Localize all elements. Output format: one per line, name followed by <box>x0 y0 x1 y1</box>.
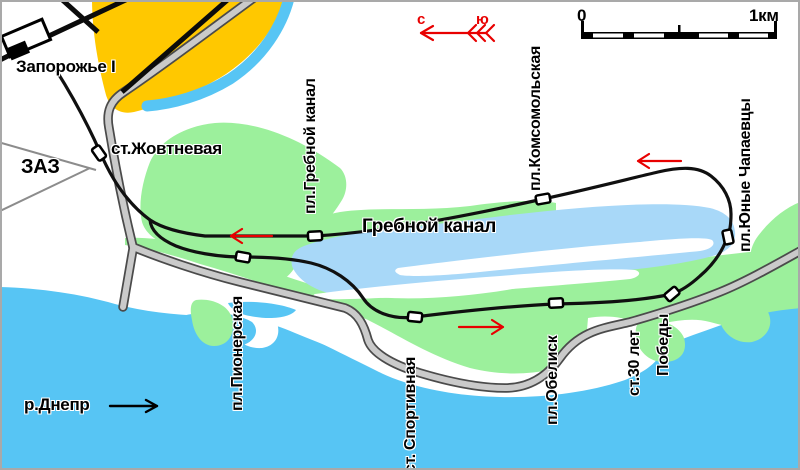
route-map: Запорожье I ЗАЗ ст.Жовтневая Гребной кан… <box>0 0 800 470</box>
compass-south-label: ю <box>476 11 489 28</box>
station-label-obelisk: пл.Обелиск <box>544 336 562 425</box>
station-marker-yunye-chapaevtsy <box>722 229 734 245</box>
station-label-pionerskaya: пл.Пионерская <box>229 296 247 411</box>
station-label-30-let-pobedy-line1: ст.30 лет <box>626 330 644 396</box>
station-label-zhovtnevaya: ст.Жовтневая <box>111 139 222 159</box>
place-label-zaporozhye: Запорожье I <box>16 57 115 77</box>
station-label-komsomolskaya: пл.Комсомольская <box>527 46 545 191</box>
station-label-grebnoy-kanal: пл.Гребной канал <box>302 78 320 214</box>
compass-north-label: с <box>417 11 425 28</box>
scale-end-label: 1км <box>749 6 779 26</box>
station-marker-pionerskaya <box>235 251 250 262</box>
station-marker-obelisk <box>549 298 563 308</box>
water-label-dnepr: р.Днепр <box>24 395 90 415</box>
scale-start-label: 0 <box>577 6 586 26</box>
station-label-30-let-pobedy-line2: Победы <box>655 314 673 376</box>
station-marker-komsomolskaya <box>535 193 550 204</box>
station-marker-grebnoy-kanal <box>308 231 322 241</box>
place-label-zaz: ЗАЗ <box>21 156 60 179</box>
station-label-yunye-chapaevtsy: пл.Юные Чапаевцы <box>737 98 755 252</box>
station-label-sportivnaya: ст. Спортивная <box>402 357 420 470</box>
station-marker-sportivnaya <box>408 312 423 322</box>
water-label-canal: Гребной канал <box>362 216 496 238</box>
